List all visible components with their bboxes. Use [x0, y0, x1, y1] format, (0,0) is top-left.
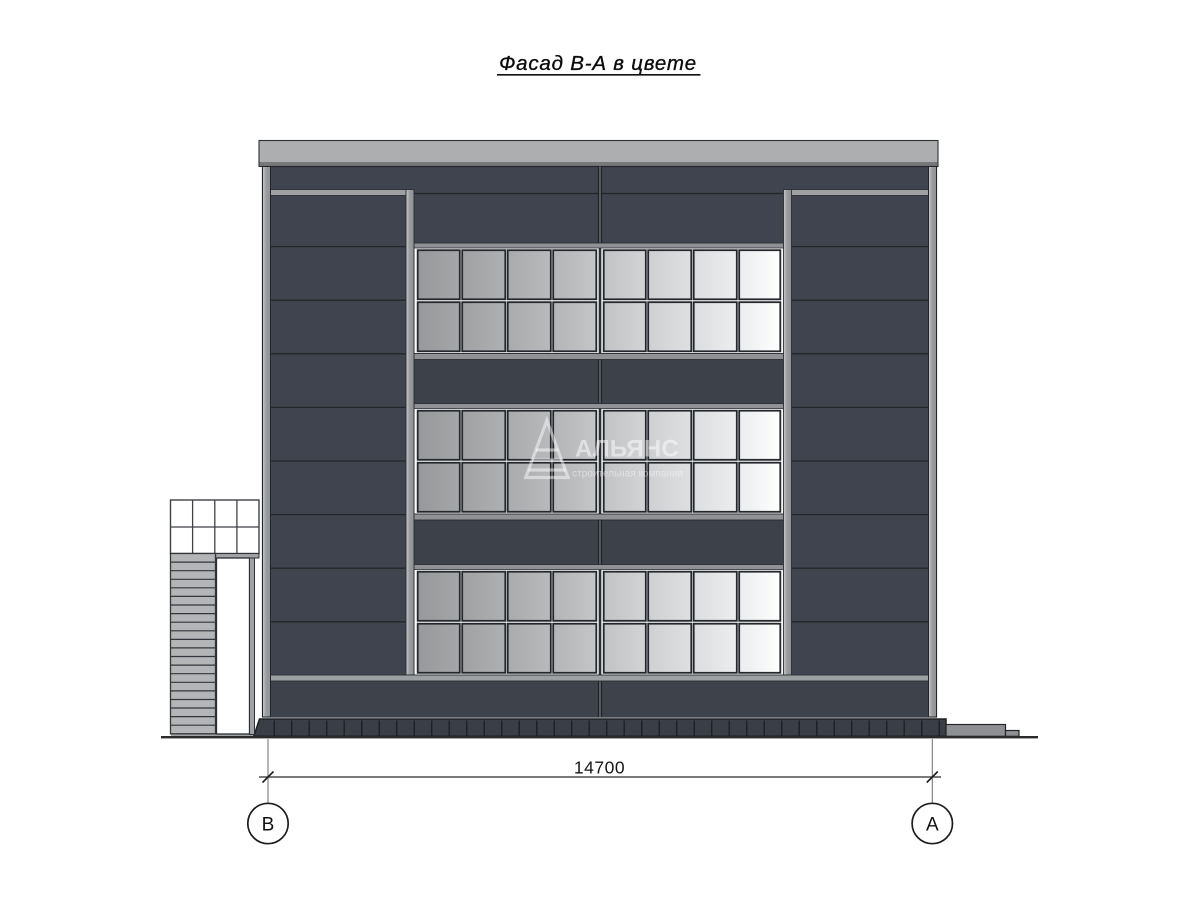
svg-text:Фасад В-А в цвете: Фасад В-А в цвете [499, 52, 697, 75]
svg-text:АЛЬЯНС: АЛЬЯНС [575, 436, 679, 463]
svg-text:строительная компания: строительная компания [572, 469, 683, 480]
svg-text:В: В [262, 814, 275, 835]
svg-text:А: А [926, 814, 939, 835]
svg-text:14700: 14700 [574, 758, 625, 778]
